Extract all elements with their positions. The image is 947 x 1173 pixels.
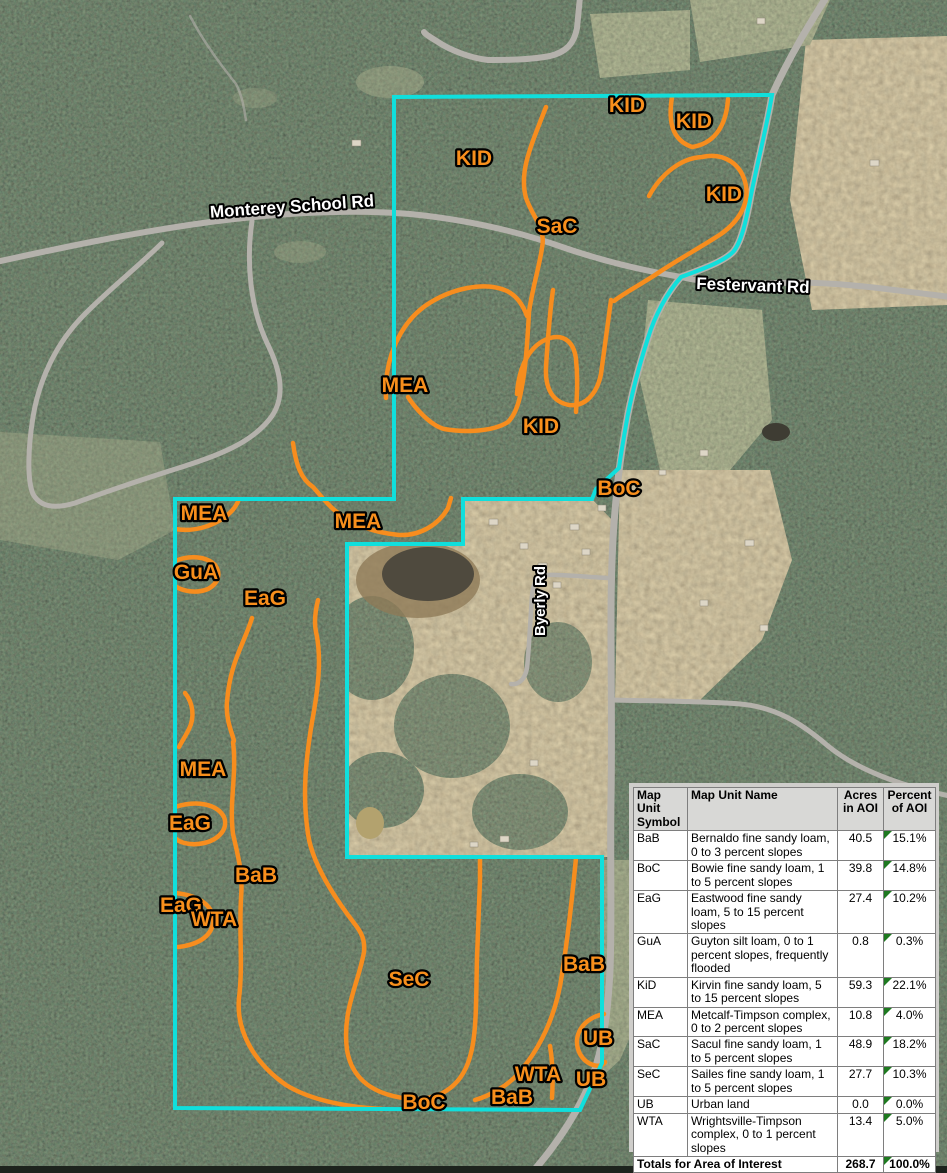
unit-label-bab: BaB — [491, 1086, 533, 1109]
col-header-symbol: Map Unit Symbol — [634, 788, 688, 831]
col-header-name: Map Unit Name — [688, 788, 838, 831]
unit-name: Wrightsville-Timpson complex, 0 to 1 per… — [688, 1113, 838, 1156]
unit-label-boc: BoC — [597, 477, 640, 500]
col-header-percent: Percent of AOI — [884, 788, 936, 831]
unit-percent: 0.0% — [884, 1097, 936, 1113]
unit-acres: 27.7 — [838, 1067, 884, 1097]
unit-label-kid: KID — [706, 183, 742, 206]
table-row: BaB Bernaldo fine sandy loam, 0 to 3 per… — [634, 831, 936, 861]
unit-label-kid: KID — [456, 147, 492, 170]
table-row: UB Urban land 0.0 0.0% — [634, 1097, 936, 1113]
road-label-festervant: Festervant Rd — [696, 274, 810, 297]
soil-legend-table: Map Unit Symbol Map Unit Name Acres in A… — [633, 787, 936, 1173]
totals-label: Totals for Area of Interest — [634, 1156, 838, 1172]
totals-row: Totals for Area of Interest 268.7 100.0% — [634, 1156, 936, 1172]
unit-symbol: WTA — [634, 1113, 688, 1156]
table-row: SeC Sailes fine sandy loam, 1 to 5 perce… — [634, 1067, 936, 1097]
unit-percent: 0.3% — [884, 934, 936, 977]
unit-label-kid: KID — [609, 94, 645, 117]
totals-acres: 268.7 — [838, 1156, 884, 1172]
unit-label-mea: MEA — [382, 374, 429, 397]
unit-symbol: SaC — [634, 1037, 688, 1067]
table-row: WTA Wrightsville-Timpson complex, 0 to 1… — [634, 1113, 936, 1156]
unit-symbol: UB — [634, 1097, 688, 1113]
unit-label-bab: BaB — [235, 864, 277, 887]
unit-label-mea: MEA — [181, 502, 228, 525]
unit-percent: 5.0% — [884, 1113, 936, 1156]
unit-percent: 10.3% — [884, 1067, 936, 1097]
unit-label-ub: UB — [583, 1027, 613, 1050]
unit-label-gua: GuA — [174, 561, 218, 584]
unit-name: Bowie fine sandy loam, 1 to 5 percent sl… — [688, 861, 838, 891]
legend-header-row: Map Unit Symbol Map Unit Name Acres in A… — [634, 788, 936, 831]
unit-name: Guyton silt loam, 0 to 1 percent slopes,… — [688, 934, 838, 977]
unit-percent: 10.2% — [884, 891, 936, 934]
unit-label-sec: SeC — [389, 968, 430, 991]
unit-percent: 15.1% — [884, 831, 936, 861]
unit-symbol: MEA — [634, 1007, 688, 1037]
unit-label-wta: WTA — [515, 1063, 561, 1086]
unit-percent: 18.2% — [884, 1037, 936, 1067]
unit-label-wta: WTA — [191, 908, 237, 931]
table-row: BoC Bowie fine sandy loam, 1 to 5 percen… — [634, 861, 936, 891]
unit-percent: 14.8% — [884, 861, 936, 891]
soil-legend-panel: Map Unit Symbol Map Unit Name Acres in A… — [629, 783, 939, 1152]
unit-acres: 48.9 — [838, 1037, 884, 1067]
unit-name: Metcalf-Timpson complex, 0 to 2 percent … — [688, 1007, 838, 1037]
unit-acres: 27.4 — [838, 891, 884, 934]
road-label-byerly: Byerly Rd — [532, 566, 549, 636]
table-row: KiD Kirvin fine sandy loam, 5 to 15 perc… — [634, 977, 936, 1007]
unit-label-ub: UB — [576, 1068, 606, 1091]
unit-label-kid: KID — [523, 415, 559, 438]
small-pond — [356, 807, 384, 839]
unit-acres: 10.8 — [838, 1007, 884, 1037]
unit-name: Urban land — [688, 1097, 838, 1113]
unit-name: Bernaldo fine sandy loam, 0 to 3 percent… — [688, 831, 838, 861]
table-row: SaC Sacul fine sandy loam, 1 to 5 percen… — [634, 1037, 936, 1067]
unit-acres: 39.8 — [838, 861, 884, 891]
unit-name: Sailes fine sandy loam, 1 to 5 percent s… — [688, 1067, 838, 1097]
unit-acres: 0.0 — [838, 1097, 884, 1113]
unit-acres: 40.5 — [838, 831, 884, 861]
unit-label-boc: BoC — [402, 1091, 445, 1114]
table-row: MEA Metcalf-Timpson complex, 0 to 2 perc… — [634, 1007, 936, 1037]
unit-name: Eastwood fine sandy loam, 5 to 15 percen… — [688, 891, 838, 934]
unit-name: Kirvin fine sandy loam, 5 to 15 percent … — [688, 977, 838, 1007]
unit-name: Sacul fine sandy loam, 1 to 5 percent sl… — [688, 1037, 838, 1067]
east-pond — [762, 423, 790, 441]
unit-label-eag: EaG — [169, 812, 211, 835]
unit-label-kid: KID — [676, 110, 712, 133]
unit-symbol: EaG — [634, 891, 688, 934]
unit-symbol: BaB — [634, 831, 688, 861]
unit-percent: 22.1% — [884, 977, 936, 1007]
unit-percent: 4.0% — [884, 1007, 936, 1037]
unit-label-bab: BaB — [563, 953, 605, 976]
unit-label-mea: MEA — [335, 510, 382, 533]
soil-survey-map-view: Monterey School Rd Festervant Rd Byerly … — [0, 0, 947, 1166]
pond — [382, 547, 474, 601]
unit-acres: 13.4 — [838, 1113, 884, 1156]
unit-symbol: BoC — [634, 861, 688, 891]
table-row: EaG Eastwood fine sandy loam, 5 to 15 pe… — [634, 891, 936, 934]
unit-acres: 0.8 — [838, 934, 884, 977]
unit-symbol: KiD — [634, 977, 688, 1007]
totals-percent: 100.0% — [884, 1156, 936, 1172]
col-header-acres: Acres in AOI — [838, 788, 884, 831]
unit-label-mea: MEA — [180, 758, 227, 781]
unit-label-sac: SaC — [537, 215, 578, 238]
unit-symbol: SeC — [634, 1067, 688, 1097]
unit-label-eag: EaG — [244, 587, 286, 610]
unit-symbol: GuA — [634, 934, 688, 977]
unit-acres: 59.3 — [838, 977, 884, 1007]
table-row: GuA Guyton silt loam, 0 to 1 percent slo… — [634, 934, 936, 977]
